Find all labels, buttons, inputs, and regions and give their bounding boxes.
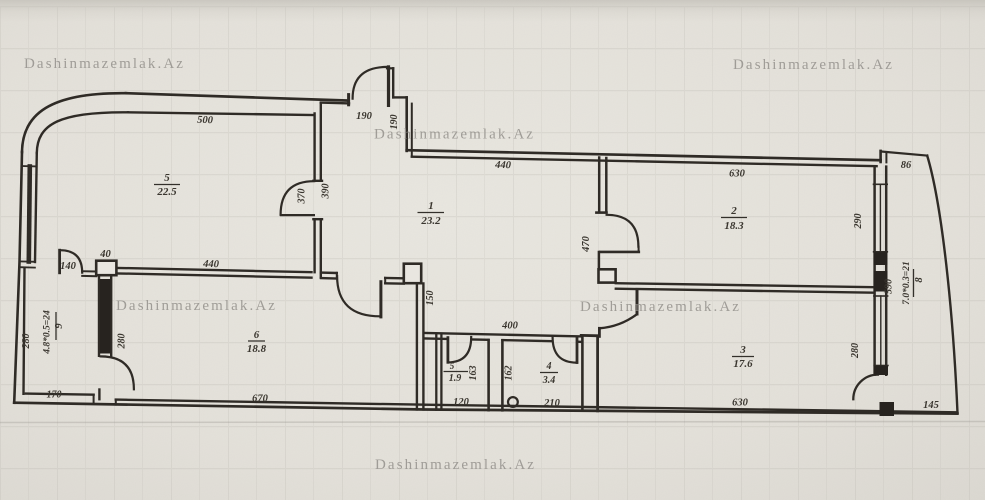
svg-text:440: 440: [494, 160, 512, 171]
svg-text:280: 280: [21, 334, 32, 350]
svg-text:145: 145: [923, 400, 939, 411]
svg-text:670: 670: [252, 394, 269, 405]
svg-text:390: 390: [321, 184, 332, 200]
svg-text:2: 2: [730, 205, 737, 217]
svg-text:4: 4: [546, 361, 552, 372]
svg-text:18.8: 18.8: [247, 343, 267, 355]
svg-text:Dashinmazemlak.Az: Dashinmazemlak.Az: [116, 298, 277, 314]
svg-text:440: 440: [202, 259, 220, 270]
svg-text:6: 6: [254, 329, 260, 341]
svg-text:280: 280: [850, 343, 861, 359]
svg-text:370: 370: [297, 189, 308, 205]
svg-text:290: 290: [853, 214, 864, 230]
svg-text:590: 590: [884, 279, 895, 294]
svg-text:22.5: 22.5: [156, 186, 177, 198]
svg-text:23.2: 23.2: [420, 215, 441, 227]
svg-text:3: 3: [739, 344, 746, 356]
svg-text:170: 170: [47, 390, 62, 401]
svg-text:7.0*0.3=21: 7.0*0.3=21: [901, 261, 912, 304]
svg-text:630: 630: [729, 169, 746, 180]
svg-text:190: 190: [356, 111, 373, 122]
svg-text:140: 140: [60, 261, 77, 272]
svg-text:Dashinmazemlak.Az: Dashinmazemlak.Az: [24, 56, 185, 72]
svg-text:17.6: 17.6: [733, 358, 753, 370]
svg-text:470: 470: [581, 235, 592, 253]
svg-text:Dashinmazemlak.Az: Dashinmazemlak.Az: [375, 457, 536, 473]
svg-text:1: 1: [428, 200, 434, 212]
svg-text:3.4: 3.4: [542, 375, 556, 386]
svg-text:500: 500: [197, 115, 214, 126]
svg-text:280: 280: [117, 334, 128, 350]
svg-text:40: 40: [99, 249, 111, 260]
svg-text:150: 150: [425, 291, 436, 306]
svg-text:18.3: 18.3: [724, 220, 744, 232]
svg-text:8: 8: [914, 277, 925, 283]
svg-text:210: 210: [543, 398, 561, 409]
svg-text:Dashinmazemlak.Az: Dashinmazemlak.Az: [374, 127, 535, 143]
svg-text:4.8*0.5=24: 4.8*0.5=24: [42, 310, 53, 355]
svg-text:5: 5: [450, 361, 455, 371]
svg-text:Dashinmazemlak.Az: Dashinmazemlak.Az: [580, 299, 741, 315]
svg-text:Dashinmazemlak.Az: Dashinmazemlak.Az: [733, 57, 894, 73]
svg-text:163: 163: [468, 366, 479, 381]
svg-text:86: 86: [901, 160, 912, 171]
svg-text:5: 5: [164, 172, 170, 184]
svg-text:1.9: 1.9: [449, 373, 462, 384]
svg-text:120: 120: [453, 397, 470, 408]
svg-text:630: 630: [732, 398, 749, 409]
svg-text:400: 400: [501, 321, 519, 332]
svg-text:162: 162: [504, 366, 515, 381]
